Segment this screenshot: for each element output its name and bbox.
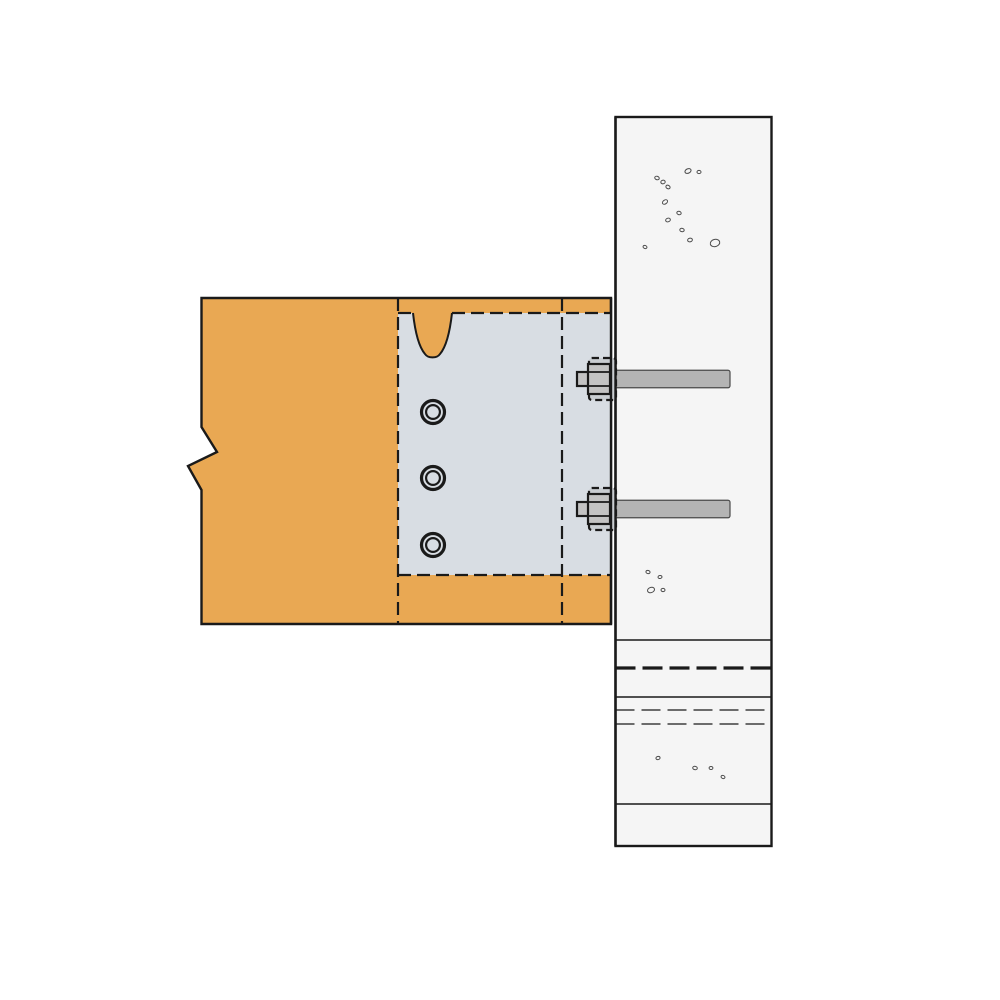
diagram-canvas [0, 0, 1000, 1000]
hex-nut [588, 364, 610, 394]
hex-nut [588, 494, 610, 524]
front-edges [611, 117, 616, 846]
bolt-shaft [613, 370, 730, 388]
column-outline [616, 117, 772, 846]
concrete-column [616, 117, 772, 846]
bolt-shaft [613, 500, 730, 518]
connection-detail-drawing [0, 0, 1000, 1000]
